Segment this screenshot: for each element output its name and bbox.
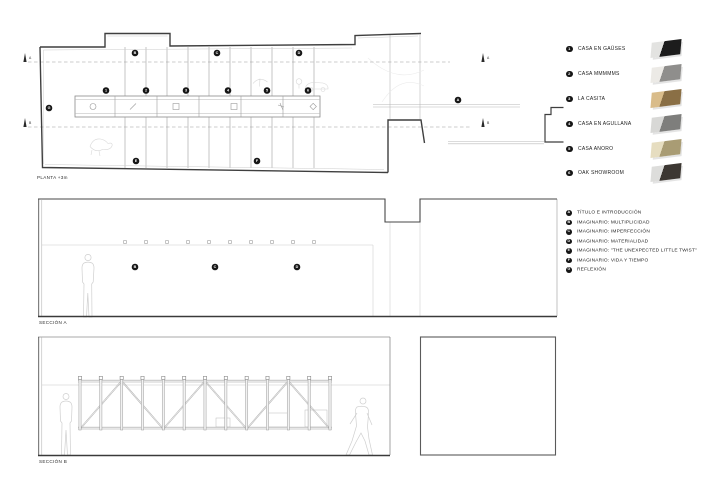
section-a-drawing: BCD [38, 199, 557, 317]
cut-label-B: B [29, 121, 32, 125]
plan-marker-C-label: C [216, 51, 219, 55]
project-legend-item: 4CASA EN AGULLANA [565, 115, 697, 133]
truss-post [141, 379, 143, 431]
chapter-label: REFLEXIÓN [577, 268, 606, 273]
hanging-square [250, 241, 253, 244]
truss-post [266, 379, 268, 431]
project-label: CASA ANORO [578, 146, 613, 152]
project-legend-item: 1CASA EN GAÜSES [565, 40, 697, 58]
plan-marker-2-label: 2 [145, 89, 147, 93]
cut-arrow-A [23, 53, 26, 62]
plan-title: PLANTA +3m [37, 175, 68, 180]
timber-truss [78, 376, 332, 430]
chapter-letter-badge: G [566, 267, 572, 273]
project-label: LA CASITA [578, 96, 605, 102]
project-label: CASA EN AGULLANA [578, 121, 631, 127]
project-legend-item: 3LA CASITA [565, 90, 697, 108]
chapter-letter-badge: F [566, 258, 572, 264]
hanging-square [271, 241, 274, 244]
truss-post-cap [99, 376, 102, 379]
chapter-legend-item: CIMAGINARIO: IMPERFECCIÓN [565, 227, 697, 237]
project-model-thumbnail [650, 163, 681, 182]
chapter-legend-item: ATÍTULO E INTRODUCCIÓN [565, 208, 697, 218]
plan-marker-B-label: B [134, 51, 137, 55]
plan-marker-D-label: D [298, 51, 301, 55]
truss-post-cap [120, 376, 123, 379]
plan-marker-1-label: 1 [105, 89, 107, 93]
plan-marker-3-label: 3 [185, 89, 187, 93]
chapter-letter-badge: E [566, 248, 572, 254]
chapter-letter-badge: B [566, 220, 572, 226]
truss-post-cap [78, 376, 81, 379]
project-model-thumbnail [650, 114, 681, 133]
chapter-legend-item: BIMAGINARIO: MULTIPLICIDAD [565, 218, 697, 228]
truss-post [100, 379, 102, 431]
hanging-square [166, 241, 169, 244]
project-label: CASA MMMMMS [578, 71, 620, 77]
chapter-label: IMAGINARIO: VIDA Y TIEMPO [577, 258, 648, 263]
hanging-square [208, 241, 211, 244]
truss-post [79, 379, 81, 431]
truss-post [121, 379, 123, 431]
truss-post [308, 379, 310, 431]
chapter-letter-badge: C [566, 229, 572, 235]
truss-post-cap [183, 376, 186, 379]
project-legend-item: 6OAK SHOWROOM [565, 164, 697, 182]
hanging-square [313, 241, 316, 244]
truss-post-cap [328, 376, 331, 379]
project-number-badge: 6 [566, 170, 573, 177]
hanging-square [187, 241, 190, 244]
truss-post-cap [203, 376, 206, 379]
project-number-badge: 1 [566, 46, 573, 53]
project-number-badge: 3 [566, 96, 573, 103]
cut-label-A: A [29, 56, 32, 60]
truss-post-cap [162, 376, 165, 379]
chapter-label: IMAGINARIO: MATERIALIDAD [577, 239, 648, 244]
cut-arrow-B [481, 118, 484, 127]
hanging-square [145, 241, 148, 244]
truss-post [329, 379, 331, 431]
hanging-square [124, 241, 127, 244]
project-number-badge: 2 [566, 71, 573, 78]
chapter-legend-item: DIMAGINARIO: MATERIALIDAD [565, 237, 697, 247]
cut-label-B: B [487, 121, 490, 125]
project-number-badge: 5 [566, 146, 573, 153]
project-model-thumbnail [650, 89, 681, 108]
project-model-thumbnail [650, 139, 681, 158]
project-legend-item: 5CASA ANORO [565, 140, 697, 158]
chapter-legend-item: FIMAGINARIO: VIDA Y TIEMPO [565, 256, 697, 266]
chapter-label: IMAGINARIO: MULTIPLICIDAD [577, 220, 650, 225]
truss-post [246, 379, 248, 431]
chapter-label: TÍTULO E INTRODUCCIÓN [577, 211, 641, 216]
chapter-letter-badge: D [566, 239, 572, 245]
truss-post-cap [308, 376, 311, 379]
project-model-thumbnail [650, 39, 681, 58]
project-number-badge: 4 [566, 121, 573, 128]
section-b-drawing [38, 337, 556, 456]
truss-post [204, 379, 206, 431]
section-a-marker-B-label: B [134, 265, 137, 269]
truss-post-cap [141, 376, 144, 379]
truss-post-cap [245, 376, 248, 379]
hanging-point-squares [124, 241, 316, 244]
section-b-title: SECCIÓN B [39, 459, 67, 464]
truss-post [183, 379, 185, 431]
truss-post-cap [266, 376, 269, 379]
plan-marker-6-label: 6 [307, 89, 309, 93]
chapter-legend-item: EIMAGINARIO: "THE UNEXPECTED LITTLE TWIS… [565, 246, 697, 256]
chapter-label: IMAGINARIO: IMPERFECCIÓN [577, 230, 650, 235]
plan-drawing: AABB 123456BCDGEFA [23, 34, 563, 173]
person-sketch-standing [82, 254, 94, 317]
truss-post [225, 379, 227, 431]
truss-post-cap [224, 376, 227, 379]
hanging-square [292, 241, 295, 244]
section-b-right-box [421, 337, 556, 455]
truss-post-cap [287, 376, 290, 379]
cut-arrow-A [481, 53, 484, 62]
truss-post [287, 379, 289, 431]
cut-label-A: A [487, 56, 490, 60]
plan-marker-A-label: A [457, 98, 460, 102]
cut-arrow-B [23, 118, 26, 127]
section-a-markers: BCD [132, 264, 301, 271]
chapter-legend-item: GREFLEXIÓN [565, 265, 697, 275]
chapter-letter-badge: A [566, 210, 572, 216]
project-label: OAK SHOWROOM [578, 170, 624, 176]
truss-post [162, 379, 164, 431]
project-legend-item: 2CASA MMMMMS [565, 65, 697, 83]
hanging-square [229, 241, 232, 244]
project-label: CASA EN GAÜSES [578, 46, 625, 52]
person-sketch-walking [346, 398, 373, 455]
section-a-marker-C-label: C [214, 265, 217, 269]
presentation-board: AABB 123456BCDGEFA BCD [0, 0, 710, 502]
plan-marker-G-label: G [48, 106, 51, 110]
plan-marker-5-label: 5 [266, 89, 268, 93]
section-a-marker-D-label: D [296, 265, 299, 269]
chapter-label: IMAGINARIO: "THE UNEXPECTED LITTLE TWIST… [577, 249, 697, 254]
project-model-thumbnail [650, 64, 681, 83]
section-a-title: SECCIÓN A [39, 320, 67, 325]
person-sketch-standing-b [60, 394, 72, 456]
